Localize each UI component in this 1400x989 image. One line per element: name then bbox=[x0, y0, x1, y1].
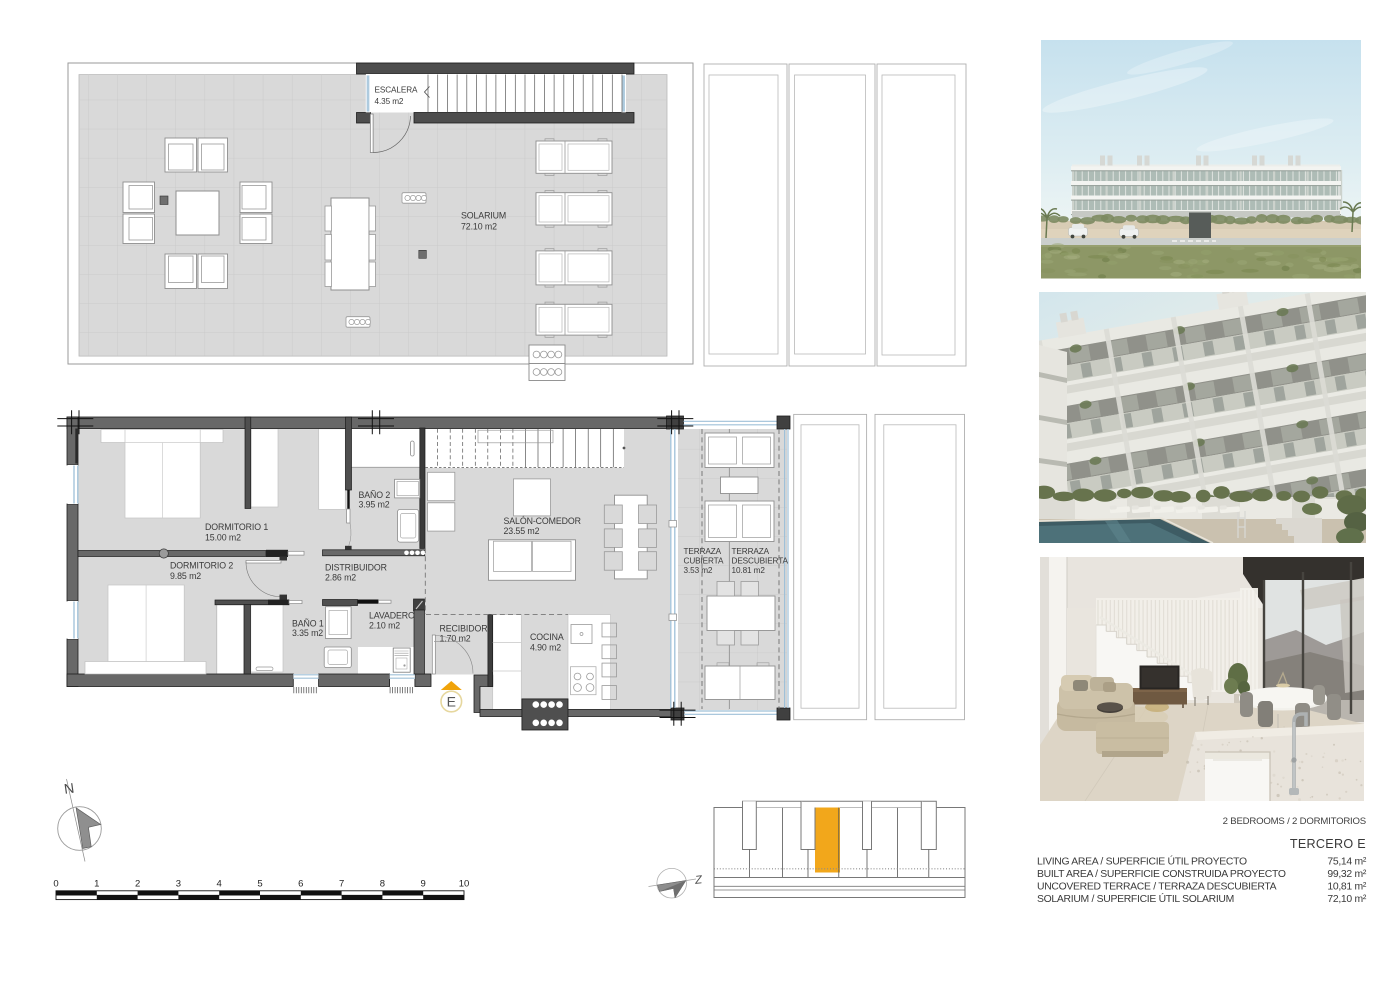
svg-text:1.70 m2: 1.70 m2 bbox=[440, 634, 471, 644]
svg-text:6: 6 bbox=[298, 879, 303, 890]
svg-text:3.95 m2: 3.95 m2 bbox=[359, 500, 390, 510]
svg-text:COCINA: COCINA bbox=[530, 632, 564, 642]
svg-text:10,81 m²: 10,81 m² bbox=[1327, 882, 1366, 893]
svg-text:CUBIERTA: CUBIERTA bbox=[684, 557, 724, 566]
svg-text:99,32 m²: 99,32 m² bbox=[1327, 869, 1366, 880]
svg-text:RECIBIDOR: RECIBIDOR bbox=[440, 624, 488, 634]
svg-text:3: 3 bbox=[176, 879, 181, 890]
svg-text:DORMITORIO 1: DORMITORIO 1 bbox=[205, 522, 268, 532]
svg-text:LIVING AREA / SUPERFICIE ÚTIL: LIVING AREA / SUPERFICIE ÚTIL PROYECTO bbox=[1037, 855, 1247, 868]
svg-text:3.35 m2: 3.35 m2 bbox=[292, 628, 323, 638]
svg-text:BAÑO 2: BAÑO 2 bbox=[359, 490, 391, 500]
svg-text:8: 8 bbox=[380, 879, 385, 890]
svg-text:72,10 m²: 72,10 m² bbox=[1327, 894, 1366, 905]
svg-text:9.85 m2: 9.85 m2 bbox=[170, 571, 201, 581]
svg-text:DORMITORIO 2: DORMITORIO 2 bbox=[170, 561, 233, 571]
svg-text:4.90 m2: 4.90 m2 bbox=[530, 643, 561, 653]
svg-text:E: E bbox=[447, 694, 456, 710]
svg-text:0: 0 bbox=[53, 879, 58, 890]
svg-text:2 BEDROOMS / 2 DORMITORIOS: 2 BEDROOMS / 2 DORMITORIOS bbox=[1223, 816, 1366, 827]
svg-text:3.53 m2: 3.53 m2 bbox=[684, 566, 713, 575]
svg-text:BUILT AREA / SUPERFICIE CONSTR: BUILT AREA / SUPERFICIE CONSTRUIDA PROYE… bbox=[1037, 869, 1286, 880]
svg-text:10: 10 bbox=[459, 879, 470, 890]
svg-text:SALÓN-COMEDOR: SALÓN-COMEDOR bbox=[504, 516, 581, 526]
svg-text:2: 2 bbox=[135, 879, 140, 890]
svg-text:10.81 m2: 10.81 m2 bbox=[732, 566, 766, 575]
svg-text:1: 1 bbox=[94, 879, 99, 890]
svg-text:4: 4 bbox=[217, 879, 222, 890]
svg-text:SOLARIUM: SOLARIUM bbox=[461, 211, 506, 221]
svg-text:2.10 m2: 2.10 m2 bbox=[369, 621, 400, 631]
svg-text:ESCALERA: ESCALERA bbox=[375, 86, 419, 95]
svg-text:SOLARIUM / SUPERFICIE ÚTIL SOL: SOLARIUM / SUPERFICIE ÚTIL SOLARIUM bbox=[1037, 892, 1234, 905]
svg-text:TERCERO E: TERCERO E bbox=[1290, 837, 1366, 851]
svg-text:2.86 m2: 2.86 m2 bbox=[325, 573, 356, 583]
svg-text:15.00 m2: 15.00 m2 bbox=[205, 533, 241, 543]
svg-text:23.55 m2: 23.55 m2 bbox=[504, 526, 540, 536]
svg-text:BAÑO 1: BAÑO 1 bbox=[292, 619, 324, 629]
svg-text:UNCOVERED TERRACE / TERRAZA DE: UNCOVERED TERRACE / TERRAZA DESCUBIERTA bbox=[1037, 882, 1277, 893]
svg-text:7: 7 bbox=[339, 879, 344, 890]
svg-text:DESCUBIERTA: DESCUBIERTA bbox=[732, 557, 789, 566]
svg-text:DISTRIBUIDOR: DISTRIBUIDOR bbox=[325, 563, 387, 573]
svg-text:9: 9 bbox=[421, 879, 426, 890]
svg-text:5: 5 bbox=[257, 879, 262, 890]
svg-text:N: N bbox=[63, 780, 75, 797]
svg-text:TERRAZA: TERRAZA bbox=[684, 547, 722, 556]
svg-text:4.35 m2: 4.35 m2 bbox=[375, 97, 404, 106]
svg-text:72.10 m2: 72.10 m2 bbox=[461, 222, 497, 232]
svg-text:Z: Z bbox=[693, 874, 703, 887]
svg-text:75,14 m²: 75,14 m² bbox=[1327, 857, 1366, 868]
svg-text:LAVADERO: LAVADERO bbox=[369, 611, 415, 621]
svg-text:TERRAZA: TERRAZA bbox=[732, 547, 770, 556]
